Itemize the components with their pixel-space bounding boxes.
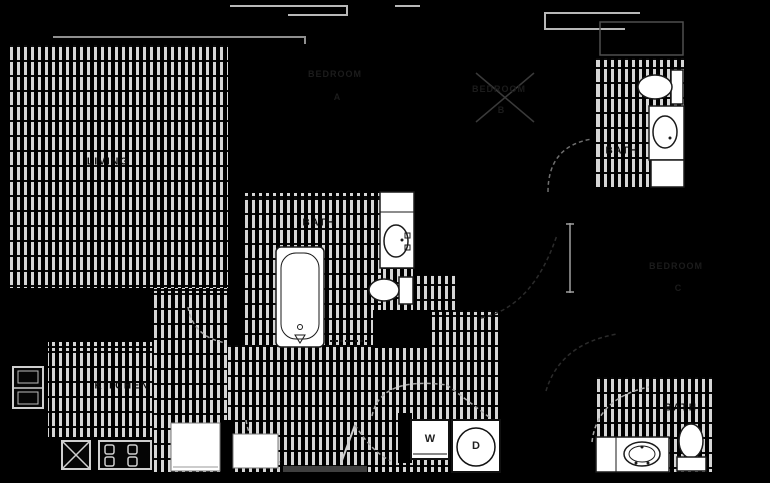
toilet-icon [638,70,683,104]
door-swing-icon [355,425,391,461]
range-burners-icon [99,441,151,469]
door-swing-icon [481,235,557,318]
plan-linework [0,0,770,483]
room-label-main-bath: BATH [302,218,335,229]
door-swing-icon [548,139,592,192]
room-letter-bedroom-c: C [675,283,682,293]
door-leaf [341,425,355,463]
appliance-stack-icon [13,367,43,408]
room-label-upper-bath: BATH [605,146,638,157]
cased-opening-x [476,73,534,122]
wall-line [53,37,305,44]
washer-label: W [425,433,435,445]
toilet-icon [677,424,706,471]
toilet-icon [369,277,413,304]
wall-base [283,466,367,472]
refrigerator-icon [171,423,220,471]
sink-vanity-icon [596,437,669,472]
bathtub-icon [276,247,324,347]
room-label-bedroom-b: BEDROOM [472,84,526,94]
room-label-kitchen: KITCHEN [95,381,150,392]
door-swing-icon [372,383,447,416]
door-leaf [447,385,489,417]
wall-line [545,13,640,29]
room-label-living: LIVING [87,157,129,168]
door-swing-icon [188,307,226,343]
room-letter-bedroom-a: A [334,92,341,102]
room-letter-bedroom-b: B [498,105,505,115]
dryer-label: D [472,440,480,452]
closet-outline [600,22,683,55]
sink-vanity-icon [649,106,684,160]
door-swing-icon [592,387,649,442]
kitchen-sink-icon [62,441,90,469]
wall-line [230,6,347,15]
pantry-icon [233,434,278,468]
wall-line [566,223,574,293]
room-label-bedroom-c: BEDROOM [649,261,703,271]
room-label-lower-bath: BATH [664,403,697,414]
shower-base-icon [651,160,684,187]
floor-plan: LIVING KITCHEN BATH BATH BATH BEDROOM A … [0,0,770,483]
room-label-bedroom-a: BEDROOM [308,69,362,79]
door-swing-icon [546,334,617,391]
sink-vanity-icon [380,192,414,268]
